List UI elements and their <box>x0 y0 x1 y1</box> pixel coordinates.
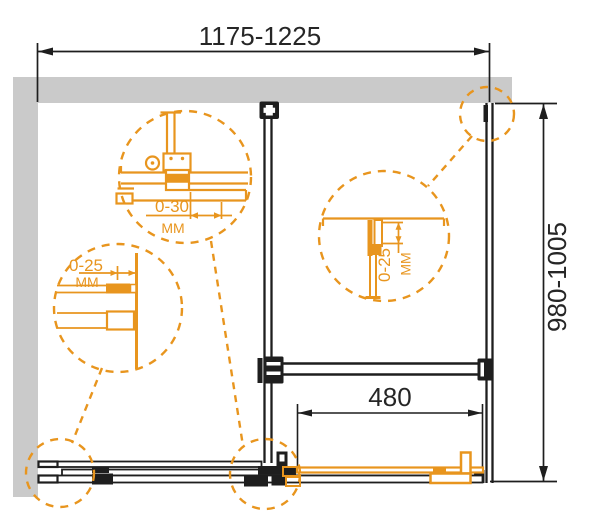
roller-carriage <box>164 154 191 171</box>
right-glass-panel <box>475 103 493 483</box>
right-profile-label: 0-25 <box>375 248 394 282</box>
door-tab <box>433 467 446 473</box>
arrow-left-icon <box>298 410 312 417</box>
junction-foot-left <box>244 476 268 487</box>
height-dimension-label: 980-1005 <box>542 222 572 332</box>
bar-clamp-left-plate <box>258 358 263 383</box>
stabilizer-bar <box>258 357 494 384</box>
bar-connector-left <box>264 357 284 384</box>
door-panel-rail <box>297 468 483 473</box>
profile-insert-top <box>106 284 130 294</box>
bar-connector-right <box>478 359 494 381</box>
arrow-down-icon <box>539 466 548 481</box>
roller-adjustment-unit: ММ <box>161 220 184 236</box>
guide-fitting-large <box>92 474 113 485</box>
door-handle <box>461 453 471 474</box>
post-cap-hole2 <box>264 108 276 113</box>
arrow-left-icon <box>38 48 53 56</box>
detail-callouts <box>26 87 514 509</box>
top-wall-bracket <box>484 105 489 122</box>
left-profile-label: 0-25 <box>69 256 103 275</box>
technical-diagram-canvas: 1175-1225 980-1005 480 <box>0 0 600 524</box>
connector-slit <box>267 362 281 366</box>
rail-lower-endcap <box>39 476 58 483</box>
width-dimension-label: 1175-1225 <box>199 21 321 51</box>
left-profile-unit: ММ <box>75 274 98 290</box>
door-roller-carriage <box>431 474 471 484</box>
right-profile-unit: ММ <box>398 252 414 275</box>
arrow-right-icon <box>468 410 482 417</box>
left-wall <box>13 77 38 497</box>
rail-upper-endcap <box>39 462 58 468</box>
connector-slit <box>481 363 485 377</box>
leader-left <box>72 368 102 443</box>
roller-adjustment-label: 0-30 <box>155 197 189 216</box>
leader-center <box>211 241 243 446</box>
roller-slot <box>280 455 285 462</box>
door-opening-label: 480 <box>368 382 411 412</box>
rail-upper <box>39 462 262 468</box>
arrow-up-icon <box>539 104 548 119</box>
top-wall <box>13 77 512 103</box>
connector-slit <box>267 372 281 376</box>
shower-enclosure-drawing: 1175-1225 980-1005 480 <box>0 0 600 524</box>
center-post <box>260 102 280 464</box>
leader-right <box>428 136 472 186</box>
door-opening-dimension <box>298 404 483 468</box>
profile-insert-bottom <box>107 312 134 330</box>
arrow-right-icon <box>474 48 489 56</box>
